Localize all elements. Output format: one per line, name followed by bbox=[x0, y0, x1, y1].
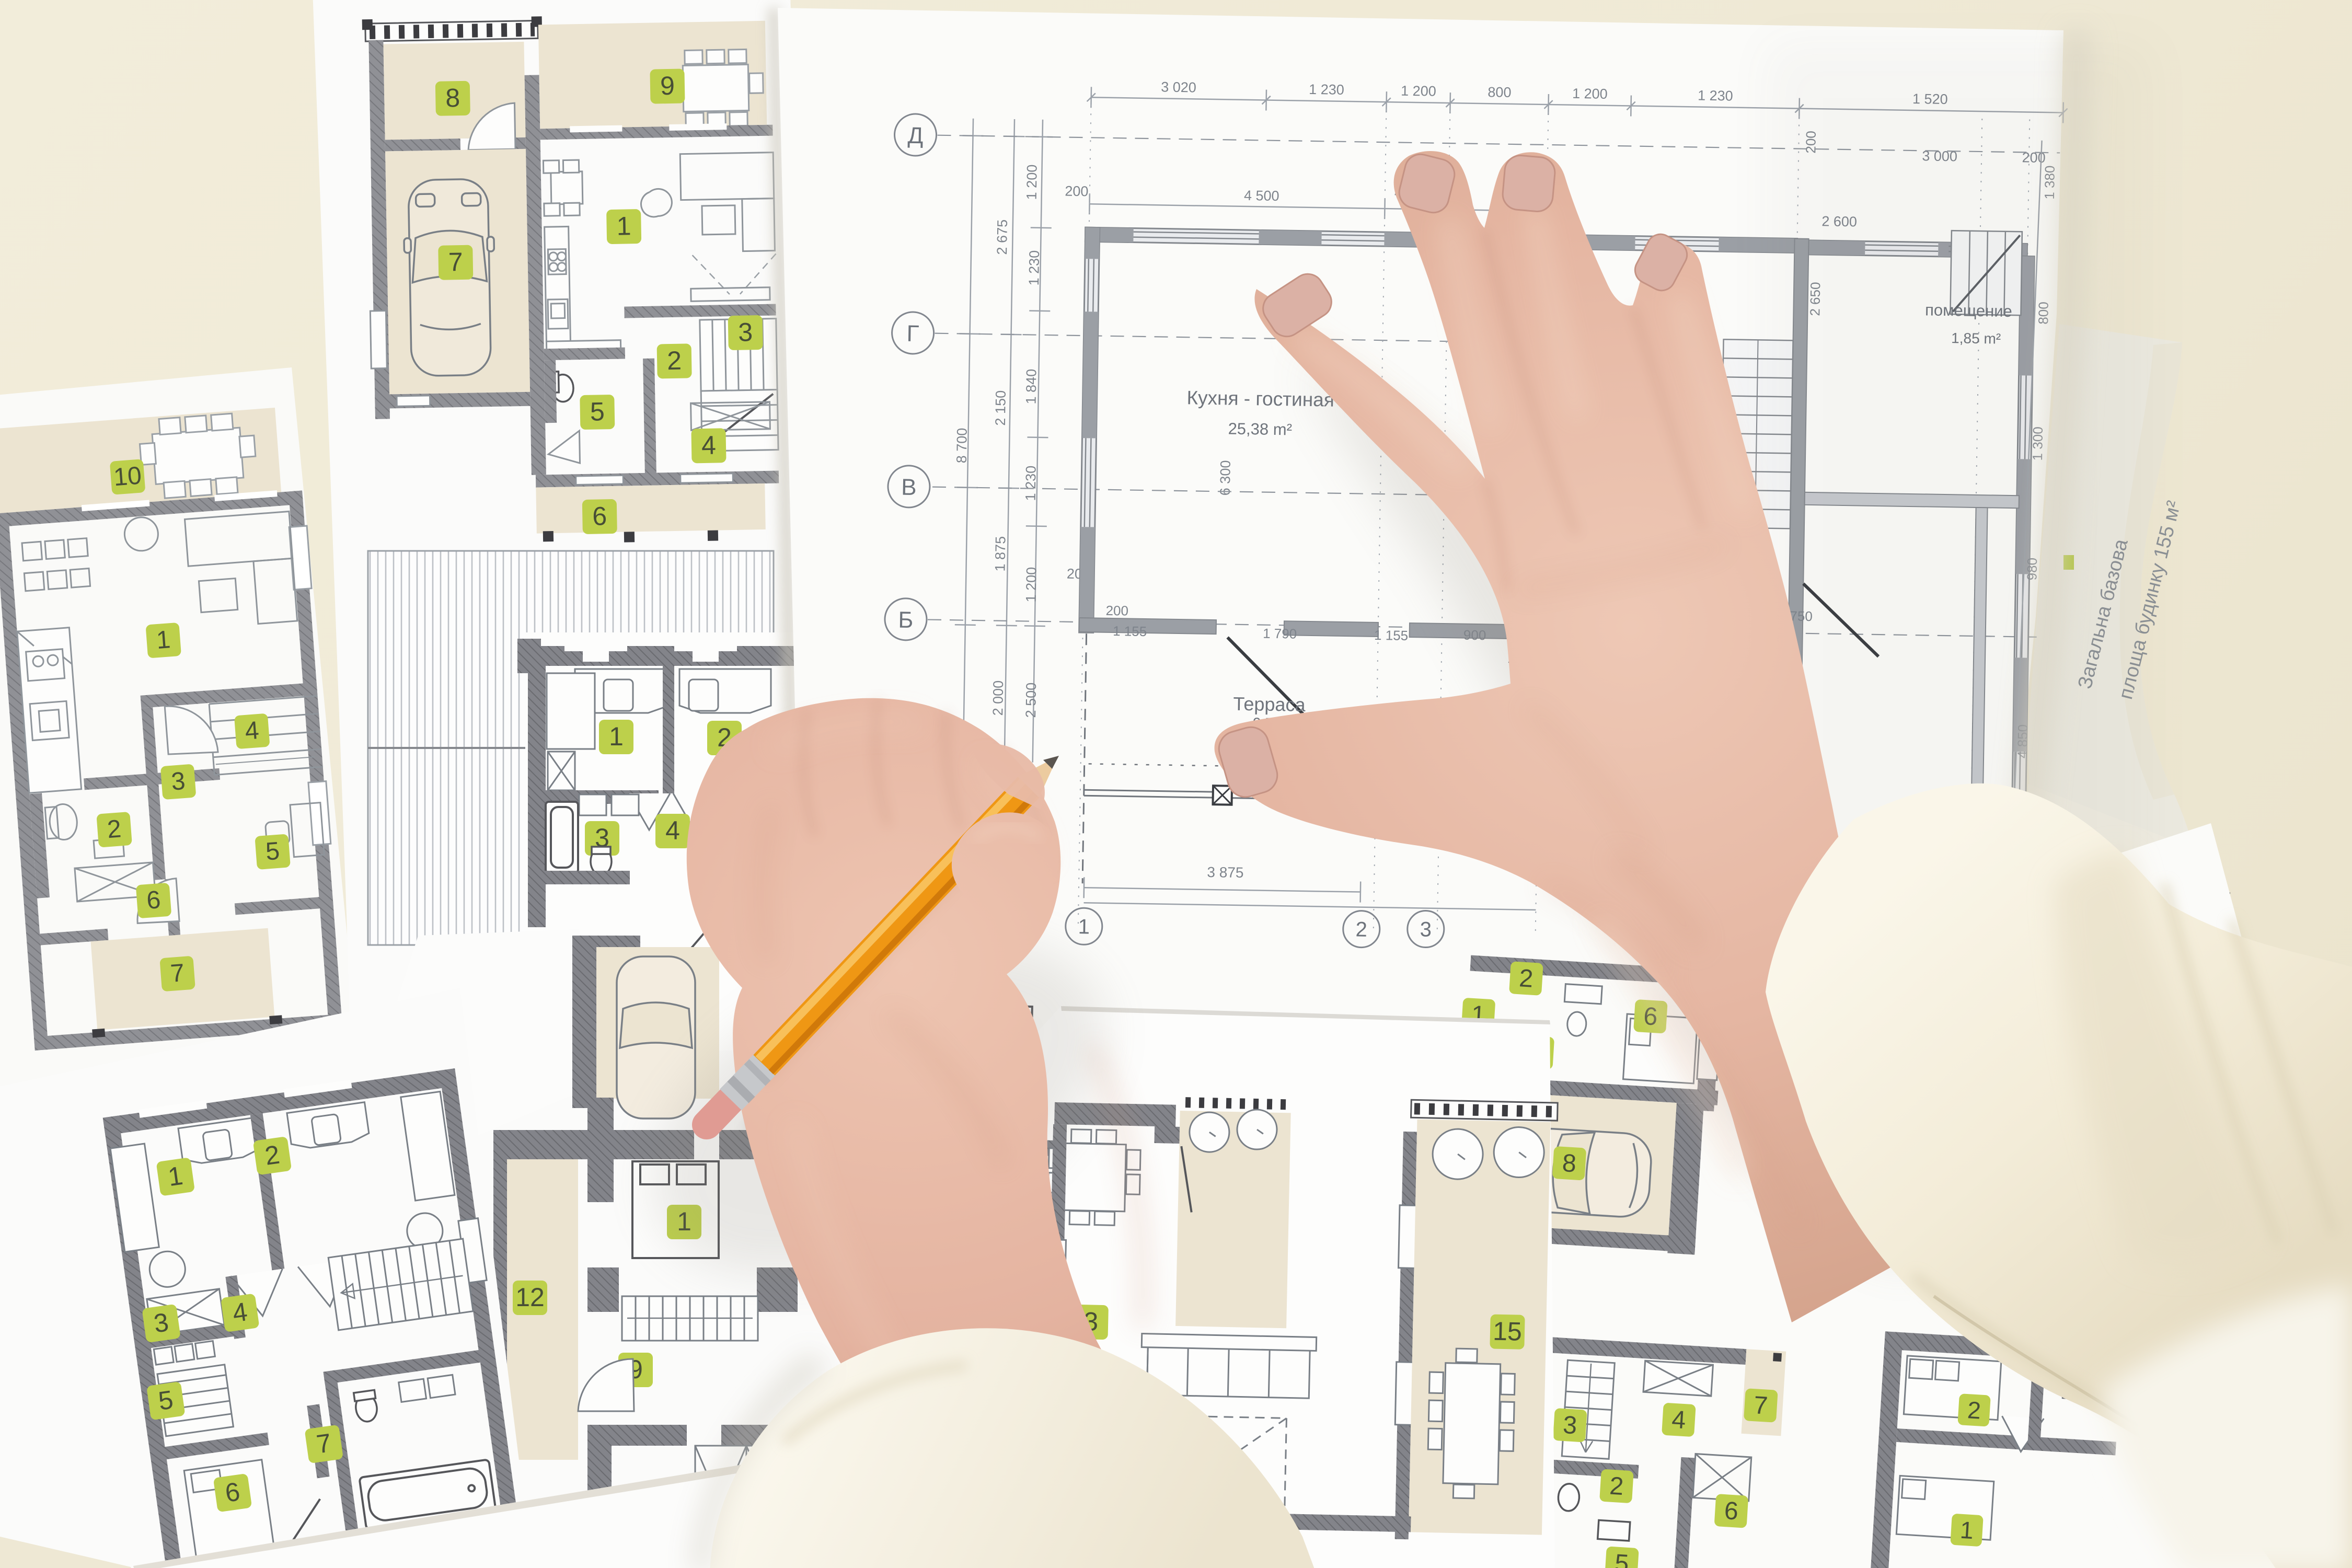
svg-text:1: 1 bbox=[1959, 1516, 1975, 1544]
svg-text:Терраса: Терраса bbox=[1233, 693, 1306, 716]
svg-text:7: 7 bbox=[169, 959, 186, 988]
svg-text:12: 12 bbox=[515, 1283, 545, 1312]
svg-text:6 300: 6 300 bbox=[1217, 460, 1233, 495]
svg-text:Кухня - гостиная: Кухня - гостиная bbox=[1186, 387, 1334, 410]
svg-text:8: 8 bbox=[445, 83, 460, 112]
svg-text:1: 1 bbox=[616, 211, 631, 240]
svg-text:2: 2 bbox=[106, 815, 122, 844]
svg-text:4: 4 bbox=[665, 816, 680, 845]
svg-text:3: 3 bbox=[738, 317, 753, 347]
svg-text:800: 800 bbox=[1488, 84, 1512, 100]
svg-text:2 000: 2 000 bbox=[990, 681, 1006, 716]
svg-text:Д: Д bbox=[907, 123, 924, 148]
svg-text:6: 6 bbox=[1723, 1497, 1739, 1526]
svg-text:8: 8 bbox=[1561, 1149, 1577, 1178]
svg-text:4: 4 bbox=[701, 431, 717, 460]
svg-text:2 500: 2 500 bbox=[1023, 683, 1039, 718]
svg-text:4 500: 4 500 bbox=[1244, 188, 1279, 204]
svg-text:6: 6 bbox=[146, 886, 162, 915]
svg-text:1: 1 bbox=[609, 722, 624, 751]
svg-text:25,38 m²: 25,38 m² bbox=[1228, 419, 1292, 439]
svg-text:8 700: 8 700 bbox=[954, 428, 970, 463]
svg-text:6: 6 bbox=[592, 501, 607, 531]
svg-text:1 200: 1 200 bbox=[1024, 164, 1040, 200]
svg-text:1: 1 bbox=[155, 626, 171, 654]
svg-text:Б: Б bbox=[898, 607, 914, 633]
svg-text:200: 200 bbox=[1105, 603, 1128, 619]
svg-text:1 840: 1 840 bbox=[1023, 369, 1039, 405]
svg-text:1 230: 1 230 bbox=[1023, 466, 1039, 501]
svg-text:1 155: 1 155 bbox=[1374, 627, 1409, 643]
svg-text:7: 7 bbox=[448, 247, 463, 276]
svg-text:1 230: 1 230 bbox=[1026, 250, 1042, 286]
svg-text:5: 5 bbox=[264, 837, 281, 866]
svg-text:200: 200 bbox=[1065, 183, 1089, 200]
svg-text:1 875: 1 875 bbox=[992, 536, 1008, 572]
svg-text:3 875: 3 875 bbox=[1207, 864, 1244, 881]
svg-text:3: 3 bbox=[1420, 918, 1432, 941]
svg-text:1 200: 1 200 bbox=[1023, 567, 1040, 603]
svg-text:1 155: 1 155 bbox=[1113, 623, 1147, 639]
svg-text:1 230: 1 230 bbox=[1698, 88, 1733, 104]
svg-text:1: 1 bbox=[1078, 915, 1090, 938]
svg-text:2: 2 bbox=[1355, 918, 1367, 941]
svg-text:1 200: 1 200 bbox=[1401, 83, 1436, 99]
svg-text:3: 3 bbox=[170, 767, 187, 796]
svg-text:9: 9 bbox=[660, 71, 675, 100]
svg-text:2: 2 bbox=[1609, 1472, 1624, 1501]
svg-text:2: 2 bbox=[1518, 964, 1534, 993]
svg-text:4: 4 bbox=[244, 717, 260, 745]
svg-text:2 675: 2 675 bbox=[994, 220, 1010, 255]
svg-text:2 150: 2 150 bbox=[993, 390, 1009, 426]
svg-text:3: 3 bbox=[1562, 1411, 1578, 1440]
svg-text:10: 10 bbox=[112, 462, 142, 492]
svg-text:В: В bbox=[901, 475, 917, 500]
svg-text:1 200: 1 200 bbox=[1572, 86, 1608, 102]
svg-text:5: 5 bbox=[590, 397, 605, 426]
svg-text:Г: Г bbox=[906, 321, 919, 347]
svg-text:7: 7 bbox=[1753, 1391, 1769, 1420]
svg-text:3 020: 3 020 bbox=[1161, 79, 1196, 95]
svg-text:15: 15 bbox=[1493, 1317, 1523, 1346]
svg-text:1 230: 1 230 bbox=[1309, 82, 1344, 98]
svg-text:1 790: 1 790 bbox=[1263, 626, 1297, 642]
svg-text:2: 2 bbox=[1967, 1396, 1982, 1424]
svg-text:4: 4 bbox=[1671, 1406, 1687, 1435]
svg-text:5: 5 bbox=[1614, 1550, 1630, 1568]
svg-text:2: 2 bbox=[667, 346, 682, 375]
